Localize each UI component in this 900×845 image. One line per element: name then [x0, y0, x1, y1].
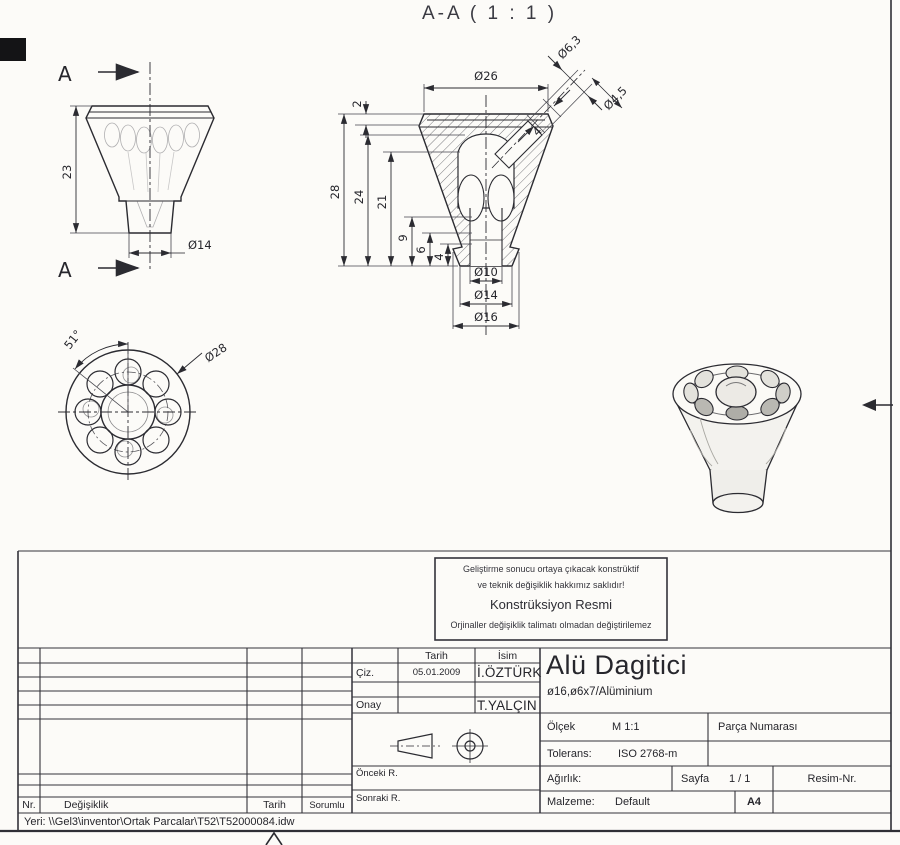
- dim-base-dia: Ø16: [474, 310, 498, 324]
- dim-angled-inner: Ø4,5: [601, 84, 630, 113]
- notice-line-3: Konstrüksiyon Resmi: [437, 594, 665, 614]
- dim-angle: 51°: [61, 327, 85, 352]
- scale-label: Ölçek: [547, 713, 607, 741]
- revision-nr-header: Nr.: [18, 797, 40, 813]
- dim-top-chamfer: 2: [350, 100, 364, 107]
- part-title: Alü Dagitici: [546, 648, 886, 682]
- dim-stem-dia: Ø14: [474, 288, 498, 302]
- revision-change-header: Değişiklik: [64, 797, 214, 813]
- cut-label-top: A: [58, 62, 72, 86]
- bottom-view-labels: 51° Ø28: [61, 327, 229, 365]
- isometric-view: [673, 364, 801, 513]
- part-subtitle: ø16,ø6x7/Alüminium: [547, 684, 887, 700]
- dim-outer-dia: Ø28: [202, 340, 229, 365]
- bottom-view: [58, 342, 202, 482]
- revision-prev-label: Önceki R.: [356, 767, 446, 780]
- approval-row-approved-name: T.YALÇIN: [477, 697, 540, 713]
- revision-next-label: Sonraki R.: [356, 792, 446, 805]
- tolerance-label: Tolerans:: [547, 741, 611, 766]
- sheet-label: Sayfa: [681, 766, 726, 791]
- approval-header-name: İsim: [475, 648, 540, 663]
- notice-line-2: ve teknik değişiklik hakkımız saklıdır!: [437, 578, 665, 592]
- dim-h9: 9: [396, 234, 410, 241]
- drawing-sheet: A A 23 Ø14: [0, 0, 900, 845]
- dim-total-height: 28: [328, 185, 342, 200]
- file-path: Yeri: \\Gel3\inventor\Ortak Parcalar\T52…: [24, 814, 624, 830]
- scale-value: M 1:1: [612, 713, 702, 741]
- part-number-label: Parça Numarası: [718, 713, 888, 741]
- approval-row-drawn-label: Çiz.: [356, 663, 398, 682]
- section-view-title: A-A ( 1 : 1 ): [422, 3, 557, 25]
- tolerance-value: ISO 2768-m: [618, 741, 708, 766]
- dim-h21: 21: [375, 195, 389, 210]
- bottom-center-mark-icon: [266, 833, 282, 845]
- cut-label-bottom: A: [58, 258, 72, 282]
- dim-h24: 24: [352, 190, 366, 205]
- front-view-labels: A A 23 Ø14: [58, 62, 212, 282]
- scan-artifact-blob: [0, 38, 26, 61]
- notice-line-4: Orjinaller değişiklik talimatı olmadan d…: [437, 618, 665, 632]
- approval-row-drawn-name: İ.ÖZTÜRK: [477, 663, 540, 682]
- material-value: Default: [615, 791, 725, 813]
- approval-row-approved-label: Onay: [356, 697, 398, 713]
- sheet-value: 1 / 1: [729, 766, 771, 791]
- dim-h6: 6: [414, 246, 428, 253]
- dim-front-height: 23: [60, 165, 74, 180]
- right-margin-arrow-icon: [862, 399, 893, 411]
- dim-h4: 4: [432, 253, 446, 260]
- dim-top-dia: Ø26: [474, 69, 498, 83]
- dim-hole-dia: Ø10: [474, 265, 498, 279]
- revision-date-header: Tarih: [247, 797, 302, 813]
- paper-format: A4: [735, 791, 773, 813]
- approval-row-drawn-date: 05.01.2009: [398, 663, 475, 682]
- dim-angled-outer: Ø6,3: [555, 33, 584, 62]
- dim-front-stem-dia: Ø14: [188, 238, 212, 252]
- weight-label: Ağırlık:: [547, 766, 667, 791]
- revision-resp-header: Sorumlu: [302, 797, 352, 813]
- notice-line-1: Geliştirme sonucu ortaya çıkacak konstrü…: [437, 562, 665, 576]
- drawing-number-label: Resim-Nr.: [773, 766, 891, 791]
- approval-header-date: Tarih: [398, 648, 475, 663]
- projection-symbol-icon: [390, 729, 488, 763]
